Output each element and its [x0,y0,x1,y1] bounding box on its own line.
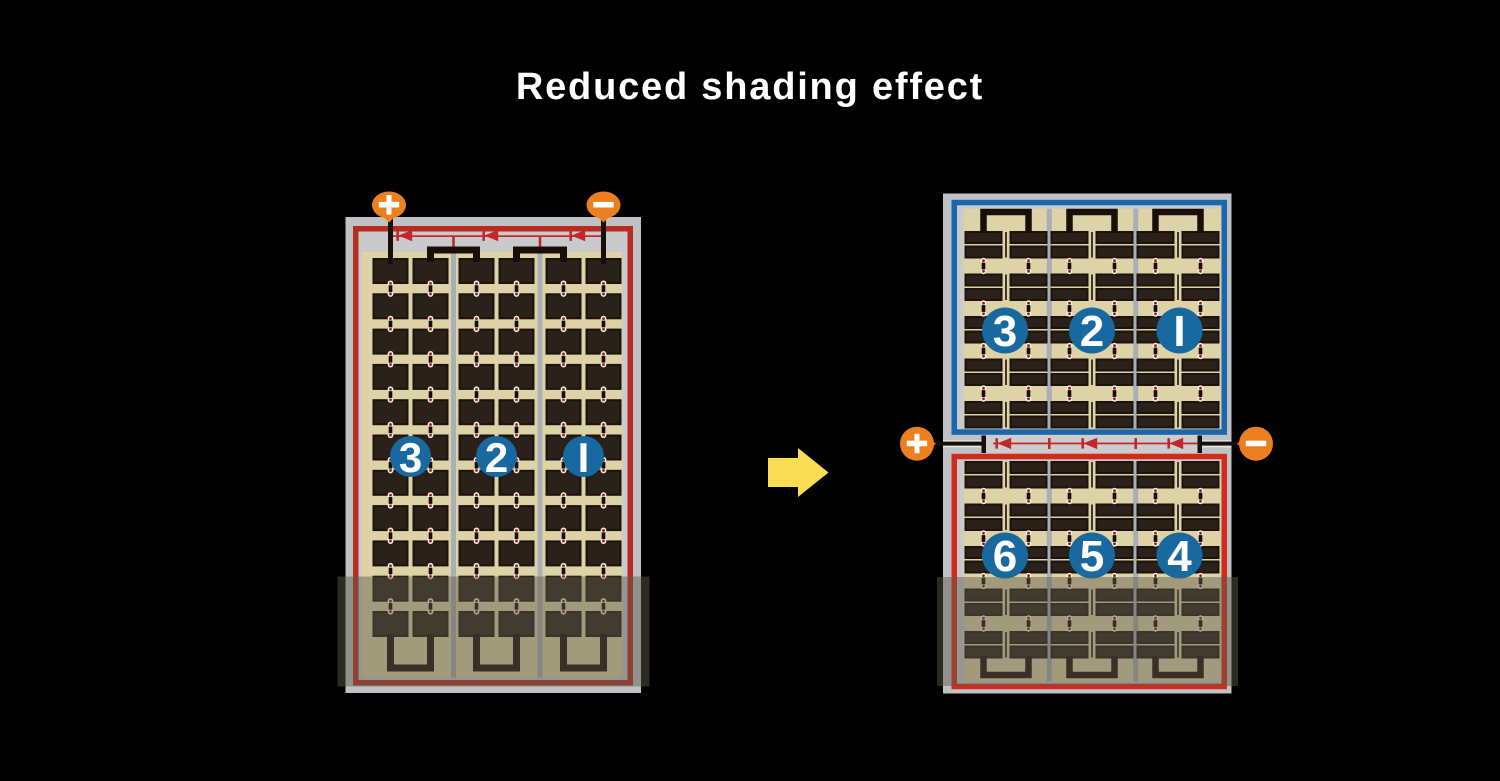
svg-text:3: 3 [399,434,422,481]
svg-text:I: I [1173,307,1185,356]
svg-text:6: 6 [993,532,1017,581]
svg-text:2: 2 [485,434,508,481]
svg-text:3: 3 [993,307,1017,356]
svg-text:2: 2 [1080,307,1104,356]
svg-text:I: I [578,434,590,481]
svg-text:4: 4 [1167,532,1192,581]
svg-text:5: 5 [1080,532,1104,581]
